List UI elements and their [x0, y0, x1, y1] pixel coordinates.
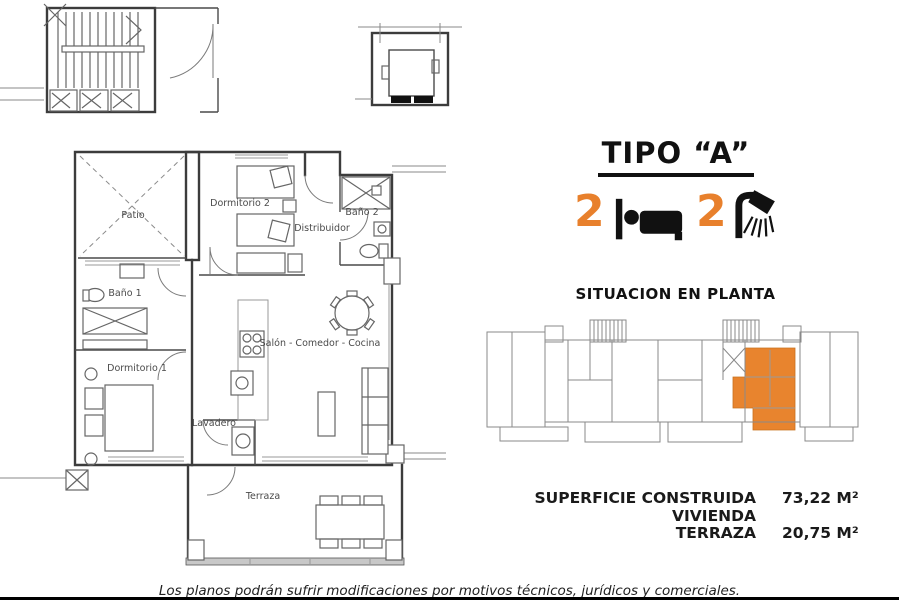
room-label-bano2: Baño 2: [345, 207, 378, 218]
dormitorio1-furniture: [85, 368, 153, 465]
terrace-table: [316, 496, 384, 548]
area-terraza-value: 20,75 M²: [782, 524, 872, 542]
dining-table: [330, 291, 375, 335]
bano1-fixtures: [83, 264, 147, 349]
patio-hatch: [80, 156, 184, 256]
elevator-door-right: [414, 96, 433, 103]
room-label-dormitorio1: Dormitorio 1: [107, 363, 167, 374]
sofa: [362, 368, 388, 454]
situation-title: SITUACION EN PLANTA: [558, 285, 793, 303]
bed-icon: [612, 197, 686, 243]
area-terraza-label: TERRAZA: [468, 524, 756, 542]
plan-sheet: Patio Dormitorio 2 Baño 2 Distribuidor B…: [0, 0, 899, 600]
dormitorio2-furniture: [237, 166, 302, 273]
room-label-distribuidor: Distribuidor: [294, 223, 350, 234]
kitchen-sink: [231, 371, 253, 395]
washing-machine: [232, 427, 254, 455]
area-vivienda-value: 73,22 M²: [782, 489, 872, 507]
bedroom-count: 2: [574, 190, 605, 234]
shower-icon: [732, 188, 780, 242]
lavadero-fixtures: [232, 427, 254, 455]
room-label-patio: Patio: [121, 210, 144, 221]
bed-dormitorio1: [105, 385, 153, 451]
coffee-table: [318, 392, 335, 436]
stair-direction-arrow: [126, 16, 141, 44]
toilet-bano2: [360, 245, 378, 258]
staircase-plan: [0, 4, 218, 112]
area-vivienda-label: SUPERFICIE CONSTRUIDA VIVIENDA: [468, 489, 756, 525]
room-label-terraza: Terraza: [245, 491, 280, 502]
room-label-lavadero: Lavadero: [192, 418, 236, 429]
elevator-door-left: [391, 96, 411, 103]
bathroom-count: 2: [696, 190, 727, 234]
room-label-dormitorio2: Dormitorio 2: [210, 198, 270, 209]
stair-handrail: [62, 46, 144, 52]
stair-storage-boxes: [50, 90, 139, 111]
terraza-plan: [66, 465, 404, 565]
room-label-bano1: Baño 1: [108, 288, 141, 299]
situation-plan: [487, 320, 858, 442]
highlighted-unit: [733, 348, 795, 430]
room-label-salon: Salón - Comedor - Cocina: [260, 338, 381, 349]
kitchen-furniture: [231, 300, 268, 420]
elevator-plan: [355, 23, 462, 105]
plan-type-title: TIPO “A”: [566, 136, 786, 177]
